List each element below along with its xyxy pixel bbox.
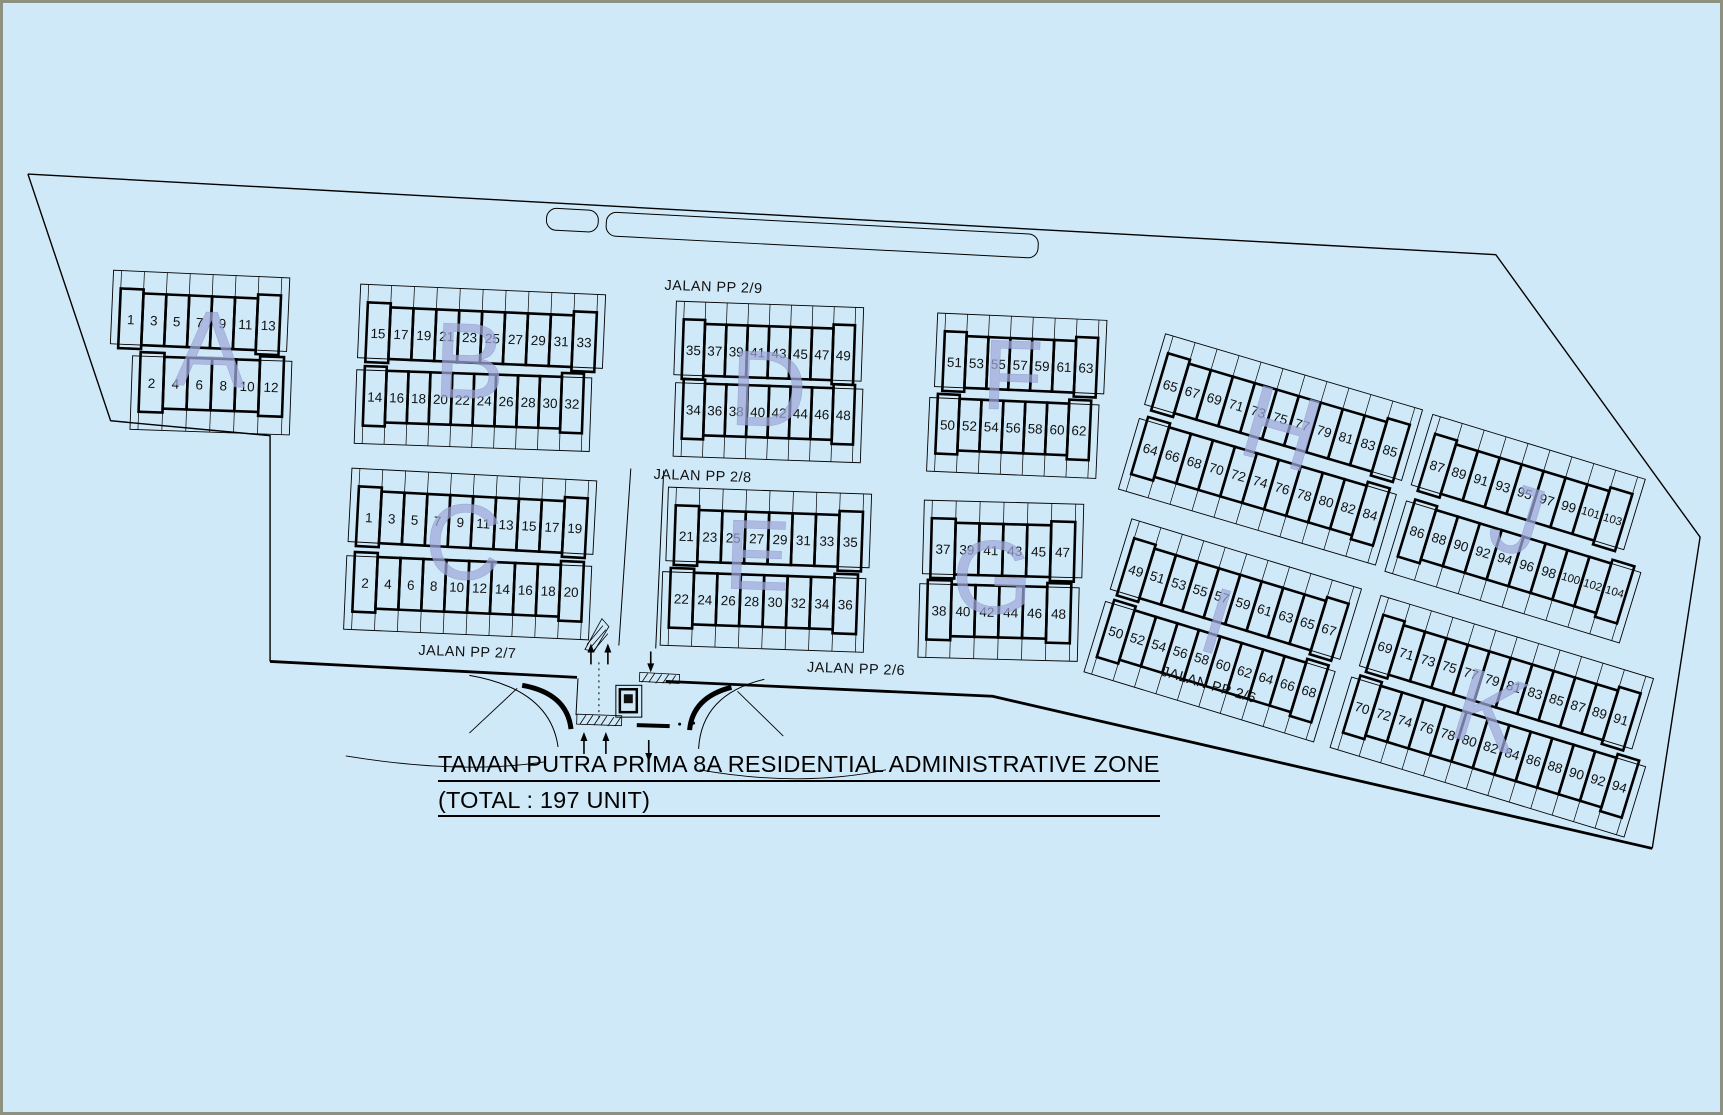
unit-number: 63 [1277,607,1296,626]
unit-number: 80 [1317,492,1336,511]
lot-line [748,304,749,326]
unit-number: 34 [686,402,702,418]
unit-number: 85 [1381,442,1400,461]
unit-number: 104 [1604,584,1626,601]
lot-line [1402,748,1408,769]
lot-line [537,428,538,450]
unit-number: 88 [1430,530,1449,549]
lot-line [1219,547,1225,568]
unit-number: 56 [1171,643,1190,662]
unit-number: 49 [1127,562,1146,581]
block-letter-C: C [422,481,504,604]
lot-line [519,477,520,499]
unit-number: 15 [370,326,386,342]
lot-line [406,423,407,445]
unit-number: 68 [1185,453,1204,472]
lot-line [1509,781,1515,802]
lot-line [551,292,552,314]
lot-line [998,637,999,659]
lot-line [1574,801,1580,822]
lot-line [494,426,495,448]
unit-number: 72 [1374,705,1393,724]
unit-number: 70 [1353,699,1372,718]
lot-line [785,628,786,650]
unit-number: 22 [674,591,689,606]
unit-number: 37 [935,542,950,557]
lot-line [1054,318,1055,340]
lot-line [1343,388,1349,409]
lot-line [974,637,975,659]
lot-line [1258,509,1264,530]
lot-line [1214,496,1220,517]
unit-number: 47 [814,347,829,362]
unit-number: 16 [389,390,404,405]
unit-number: 65 [1298,614,1317,633]
unit-number: 90 [1452,536,1471,555]
unit-number: 88 [1546,758,1565,777]
unit-number: 23 [702,530,717,545]
street-label: JALAN PP 2/7 [418,643,516,662]
unit-number: 52 [1128,630,1147,649]
unit-number: 76 [1417,719,1436,738]
lot-line [1022,453,1023,475]
lot-line [1575,657,1581,678]
unit-number: 100 [1560,571,1582,588]
unit-number: 99 [1559,497,1578,516]
unit-number: 71 [1397,645,1416,664]
block-letter-D: D [727,328,809,451]
lot-line [405,471,406,493]
lot-line [769,304,770,326]
unit-number: 14 [367,389,383,405]
unit-number: 32 [791,595,806,610]
unit-number: 46 [814,407,829,422]
lot-line [1233,356,1239,377]
unit-number: 20 [563,585,579,601]
block-letter-A: A [172,288,248,410]
lot-line [1134,666,1140,687]
lot-line [1478,430,1484,451]
lot-line [1436,566,1442,587]
lot-line [516,427,517,449]
unit-number: 35 [686,343,701,358]
entrance-flare-right-radial [737,691,783,736]
block-letter-J: J [1478,460,1558,581]
unit-number: 18 [411,391,426,406]
unit-number: 31 [796,533,811,548]
lot-line [809,629,810,651]
unit-number: 91 [1612,710,1631,729]
unit-number: 61 [1056,359,1072,375]
lot-line [1597,663,1603,684]
lot-line [1480,580,1486,601]
unit-number: 70 [1207,460,1226,479]
lot-line [1566,457,1572,478]
unit-number: 33 [819,534,834,549]
unit-number: 94 [1610,777,1629,796]
unit-number: 19 [416,328,432,344]
lot-line [1425,611,1431,632]
lot-line [1000,452,1001,474]
unit-number: 21 [679,529,694,544]
unit-number: 69 [1205,390,1224,409]
unit-number: 87 [1569,697,1588,716]
lot-line [1489,630,1495,651]
lot-line [1302,522,1308,543]
unit-number: 34 [814,596,830,612]
unit-number: 54 [1150,636,1169,655]
street-label: JALAN PP 2/8 [653,467,751,486]
unit-number: 32 [564,396,579,411]
unit-number: 3 [150,313,158,328]
unit-number: 3 [388,511,396,526]
lot-line [1458,573,1464,594]
lot-line [1531,788,1537,809]
unit-number: 65 [1161,377,1180,396]
unit-number: 86 [1408,523,1427,542]
unit-number: 85 [1547,691,1566,710]
unit-number: 17 [393,327,409,343]
lot-line [1445,762,1451,783]
unit-number: 62 [1071,423,1087,439]
road-median [606,212,1039,258]
unit-number: 64 [1257,669,1276,688]
unit-number: 36 [707,403,722,418]
unit-number: 86 [1524,751,1543,770]
unit-number: 102 [1582,577,1604,594]
lot-line [1546,600,1552,621]
unit-number: 48 [836,408,851,423]
unit-number: 62 [1235,663,1254,682]
lot-line [1500,437,1506,458]
lot-line [1240,554,1246,575]
unit-number: 47 [1055,545,1070,560]
unit-number: 68 [1300,682,1319,701]
site-plan-page: 1357911132468101215171921232527293133141… [0,0,1723,1115]
lot-line [489,614,490,636]
lot-line [1568,606,1574,627]
unit-number: 83 [1359,435,1378,454]
lot-line [722,489,723,511]
lot-line [466,613,467,635]
lot-line [810,439,811,461]
unit-number: 1 [365,510,373,525]
lot-line [1524,593,1530,614]
road-edge [656,470,664,648]
lot-line [1305,574,1311,595]
lot-line [1365,395,1371,416]
unit-number: 89 [1450,464,1469,483]
unit-number: 63 [1078,360,1094,376]
lot-line [450,425,451,447]
traffic-arrows [580,644,654,762]
lot-line [738,626,739,648]
lot-line [1466,768,1472,789]
entrance-flare-left-thin [469,675,558,747]
unit-number: 92 [1589,771,1608,790]
block-letter-F: F [980,320,1045,433]
unit-number: 84 [1361,505,1380,524]
unit-number: 67 [1320,621,1339,640]
unit-number: 51 [1148,568,1167,587]
unit-number: 82 [1339,499,1358,518]
unit-number: 75 [1440,658,1459,677]
lot-line [762,627,763,649]
unit-number: 74 [1396,712,1415,731]
unit-number: 4 [384,577,393,592]
lot-line [234,411,235,433]
plan-title: TAMAN PUTRA PRIMA 8A RESIDENTIAL ADMINIS… [438,753,1160,824]
unit-number: 60 [1049,422,1065,438]
lot-line [528,291,529,313]
unit-number: 50 [940,417,956,433]
lot-line [1280,516,1286,537]
unit-number: 48 [1051,606,1066,621]
lot-line [1324,529,1330,550]
unit-number: 1 [127,312,135,327]
lot-line [472,426,473,448]
street-label: JALAN PP 2/6 [807,660,905,679]
lot-line [1488,775,1494,796]
unit-number: 64 [1141,440,1160,459]
unit-number: 28 [520,395,535,410]
unit-number: 31 [553,334,569,350]
road-median [546,208,599,233]
unit-number: 53 [1169,575,1188,594]
unit-number: 18 [540,584,556,600]
unit-number: 29 [530,333,546,349]
unit-number: 50 [1107,623,1126,642]
unit-number: 98 [1539,563,1558,582]
unit-number: 90 [1567,764,1586,783]
lot-line [1447,617,1453,638]
street-label: JALAN PP 2/9 [664,278,762,297]
plan-title-line1: TAMAN PUTRA PRIMA 8A RESIDENTIAL ADMINIS… [438,753,1160,782]
unit-number: 17 [544,519,560,535]
lot-line [1197,541,1203,562]
lot-line [1522,443,1528,464]
site-boundary-road [270,661,577,677]
lot-line [812,306,813,328]
lot-line [978,451,979,473]
entrance-flare-right-thick [690,687,732,730]
lot-line [443,612,444,634]
lot-line [420,611,421,633]
lot-line [1283,567,1289,588]
unit-number: 89 [1590,704,1609,723]
lot-line [1554,650,1560,671]
unit-number: 16 [518,583,534,599]
unit-number: 35 [842,534,857,549]
lot-line [428,424,429,446]
block-letter-H: H [1229,362,1334,495]
lot-line [715,625,716,647]
lot-line [166,273,167,295]
lot-line [1021,638,1022,660]
unit-number: 30 [542,396,557,411]
lot-line [793,491,794,513]
unit-number: 19 [567,521,583,537]
unit-number: 6 [407,578,415,593]
unit-number: 73 [1419,651,1438,670]
guard-house-core [624,694,633,703]
unit-number: 38 [931,603,946,618]
lot-line [1262,560,1268,581]
lot-line [1511,637,1517,658]
lot-line [724,436,725,458]
unit-number: 36 [838,597,853,612]
entrance-flare-left-thick [522,685,571,729]
lot-line [535,616,536,638]
lot-line [542,478,543,500]
lot-line [1044,454,1045,476]
lot-line [1587,464,1593,485]
crossing-hatch-bottom [577,714,622,726]
lot-line [1552,794,1558,815]
unit-number: 91 [1472,471,1491,490]
lot-line [1468,624,1474,645]
lot-line [1263,706,1269,727]
unit-number: 2 [361,576,369,591]
block-letter-E: E [722,499,792,612]
lot-line [512,615,513,637]
unit-number: 61 [1255,601,1274,620]
unit-number: 37 [707,343,722,358]
unit-number: 55 [1191,581,1210,600]
lot-line [791,305,792,327]
unit-number: 15 [521,518,537,534]
lot-line [210,410,211,432]
unit-number: 13 [260,318,276,334]
lot-line [1544,450,1550,471]
unit-number: 71 [1227,396,1246,415]
unit-number: 52 [962,418,978,434]
site-plan: 1357911132468101215171921232527293133141… [3,3,1720,1112]
block-letter-G: G [950,518,1035,638]
unit-number: 2 [148,376,156,391]
entrance-dot [678,723,681,726]
lot-line [1211,349,1217,370]
unit-number: 81 [1337,429,1356,448]
lot-line [397,610,398,632]
unit-number: 67 [1183,383,1202,402]
unit-number: 24 [697,592,713,608]
block-letter-B: B [431,300,507,422]
lot-line [414,286,415,308]
entrance-edge-left [576,678,578,715]
lot-line [1532,644,1538,665]
lot-line [1381,742,1387,763]
lot-line [1502,586,1508,607]
unit-number: 66 [1163,447,1182,466]
unit-number: 101 [1580,505,1602,522]
entrance-flare-left-radial [469,688,517,733]
lot-line [1236,503,1242,524]
plan-title-line2: (TOTAL : 197 UNIT) [438,789,1160,818]
unit-number: 87 [1428,457,1447,476]
road-edge [619,468,631,645]
lot-line [1176,534,1182,555]
lot-line [1192,490,1198,511]
unit-number: 103 [1602,512,1624,529]
unit-number: 66 [1278,676,1297,695]
lot-line [1170,483,1176,504]
unit-number: 33 [576,335,592,351]
entrance-stop-line [637,725,670,726]
lot-line [1423,755,1429,776]
unit-number: 5 [410,512,418,527]
unit-number: 27 [508,332,524,348]
unit-number: 49 [836,348,851,363]
lot-line [726,303,727,325]
unit-number: 12 [263,380,278,395]
unit-number: 51 [947,355,963,371]
entrance-dot [692,722,695,725]
lot-line [816,492,817,514]
unit-number: 69 [1376,638,1395,657]
